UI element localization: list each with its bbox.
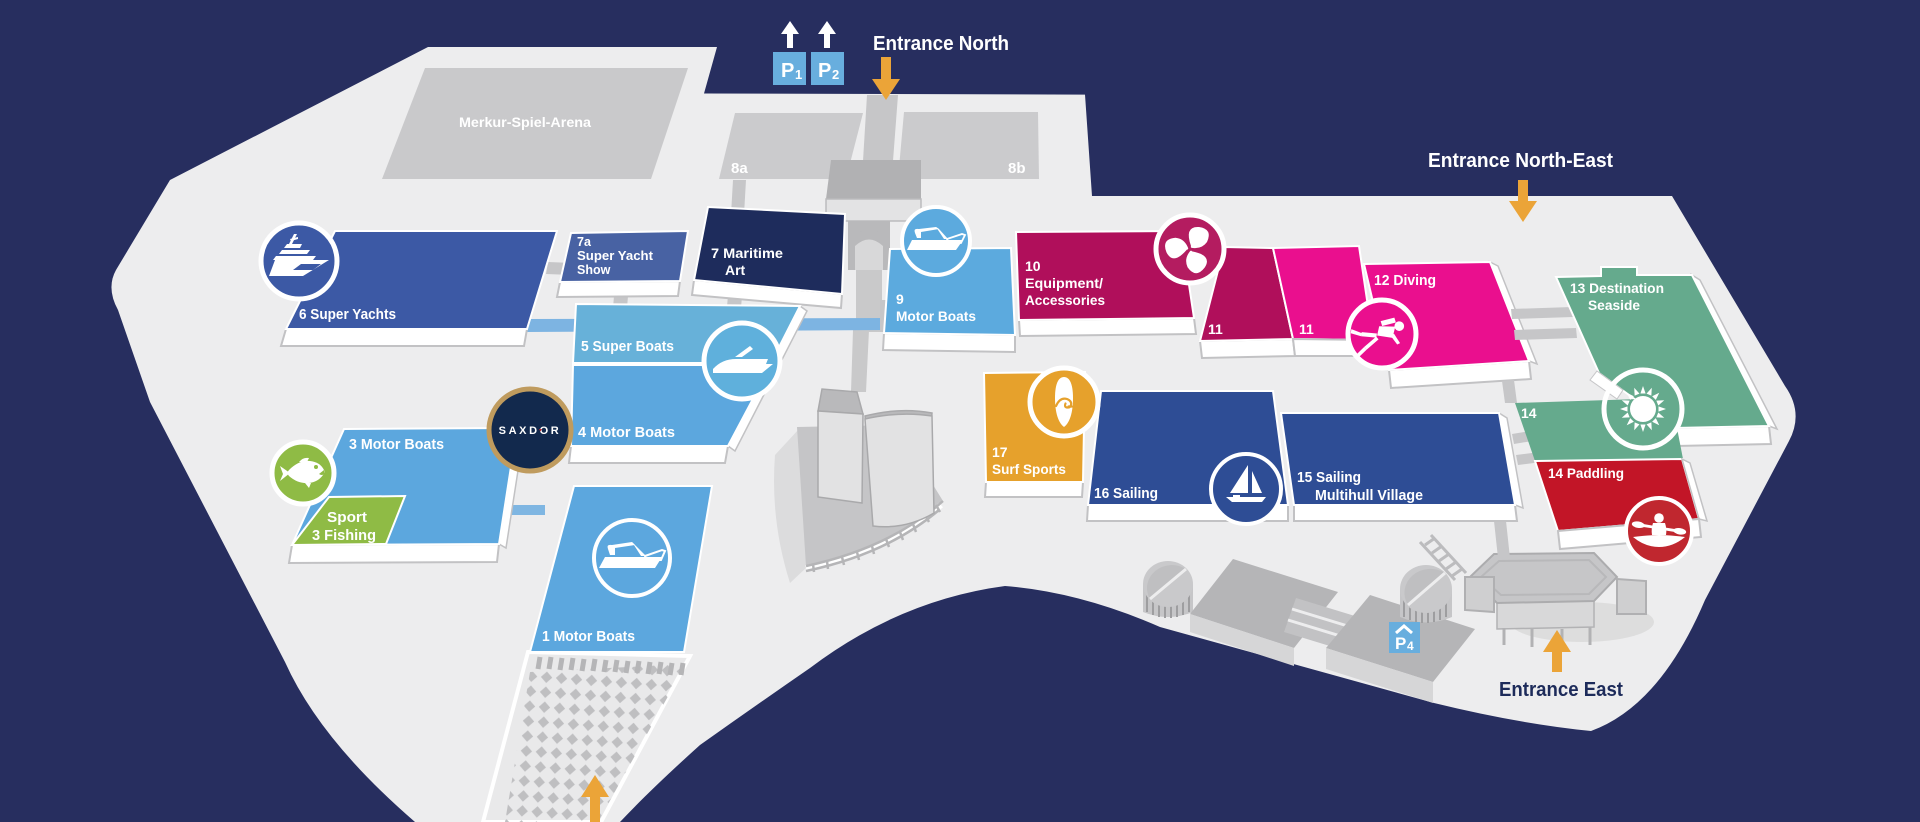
svg-text:Surf Sports: Surf Sports — [992, 461, 1066, 477]
svg-text:16 Sailing: 16 Sailing — [1094, 485, 1158, 502]
svg-text:Show: Show — [577, 263, 611, 277]
svg-text:Entrance North-East: Entrance North-East — [1428, 150, 1613, 172]
svg-text:Art: Art — [725, 262, 746, 278]
svg-text:P: P — [1395, 634, 1406, 653]
svg-text:17: 17 — [992, 444, 1008, 460]
svg-text:7a: 7a — [577, 235, 592, 249]
svg-text:SAXDOR: SAXDOR — [499, 425, 562, 437]
svg-text:14: 14 — [1521, 405, 1537, 421]
svg-text:8b: 8b — [1008, 160, 1026, 177]
svg-text:Motor Boats: Motor Boats — [896, 308, 976, 324]
svg-text:P: P — [781, 60, 794, 82]
svg-text:P: P — [818, 60, 831, 82]
svg-text:Multihull Village: Multihull Village — [1315, 487, 1423, 504]
svg-text:5 Super Boats: 5 Super Boats — [581, 338, 674, 355]
svg-text:14 Paddling: 14 Paddling — [1548, 465, 1624, 481]
svg-text:3 Motor Boats: 3 Motor Boats — [349, 436, 444, 453]
svg-text:10: 10 — [1025, 258, 1041, 274]
svg-text:11: 11 — [1208, 321, 1223, 337]
svg-text:Seaside: Seaside — [1588, 297, 1640, 313]
svg-text:9: 9 — [896, 291, 904, 307]
svg-text:12 Diving: 12 Diving — [1374, 272, 1436, 289]
svg-text:4: 4 — [1407, 639, 1414, 653]
svg-text:Entrance East: Entrance East — [1499, 679, 1623, 701]
svg-text:Sport: Sport — [327, 509, 367, 526]
svg-text:15 Sailing: 15 Sailing — [1297, 469, 1361, 486]
svg-text:Entrance North: Entrance North — [873, 33, 1009, 55]
svg-text:8a: 8a — [731, 160, 748, 177]
svg-text:4 Motor Boats: 4 Motor Boats — [578, 424, 675, 441]
svg-text:7 Maritime: 7 Maritime — [711, 245, 783, 261]
svg-text:6 Super Yachts: 6 Super Yachts — [299, 306, 396, 323]
svg-text:11: 11 — [1299, 321, 1314, 337]
svg-text:1: 1 — [795, 67, 802, 82]
svg-text:Equipment/: Equipment/ — [1025, 275, 1103, 291]
svg-text:2: 2 — [832, 67, 839, 82]
svg-text:Merkur-Spiel-Arena: Merkur-Spiel-Arena — [459, 114, 591, 130]
svg-text:3 Fishing: 3 Fishing — [312, 527, 376, 544]
svg-text:Super Yacht: Super Yacht — [577, 249, 654, 263]
svg-text:Accessories: Accessories — [1025, 292, 1105, 308]
svg-text:13 Destination: 13 Destination — [1570, 280, 1664, 296]
svg-text:1 Motor Boats: 1 Motor Boats — [542, 628, 635, 645]
